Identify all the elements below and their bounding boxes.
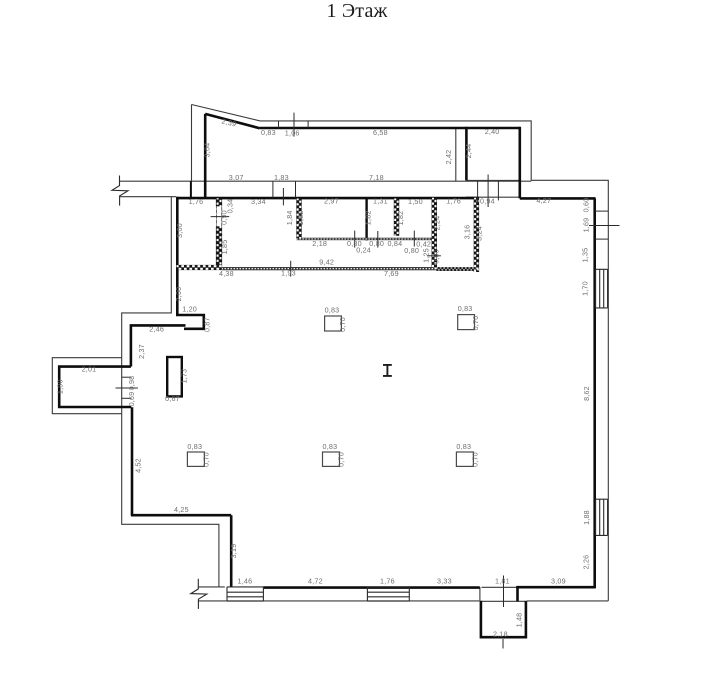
svg-text:0,94: 0,94: [480, 197, 495, 206]
svg-text:6,58: 6,58: [373, 128, 388, 137]
svg-text:4,52: 4,52: [134, 458, 143, 473]
svg-text:4,27: 4,27: [536, 196, 551, 205]
svg-text:1,90: 1,90: [55, 379, 64, 394]
svg-text:0,70: 0,70: [471, 452, 480, 467]
svg-text:1 Этаж: 1 Этаж: [326, 0, 387, 22]
svg-text:0,80: 0,80: [369, 239, 384, 248]
svg-text:7,69: 7,69: [384, 269, 399, 278]
svg-text:1,82: 1,82: [396, 211, 405, 226]
svg-text:1,85: 1,85: [220, 240, 229, 255]
svg-text:1,76: 1,76: [380, 577, 395, 586]
svg-text:2,18: 2,18: [312, 239, 327, 248]
svg-text:0,70: 0,70: [337, 452, 346, 467]
svg-text:1,20: 1,20: [182, 304, 197, 313]
svg-text:0,98: 0,98: [127, 376, 136, 391]
svg-text:0,60: 0,60: [582, 198, 591, 213]
svg-text:1,83: 1,83: [274, 173, 289, 182]
svg-text:0,24: 0,24: [356, 246, 371, 255]
svg-text:8,62: 8,62: [582, 386, 591, 401]
svg-text:2,40: 2,40: [485, 127, 500, 136]
svg-text:0,83: 0,83: [261, 128, 276, 137]
svg-text:1,46: 1,46: [238, 577, 253, 586]
svg-text:0,83: 0,83: [456, 442, 471, 451]
svg-text:4,72: 4,72: [308, 577, 323, 586]
svg-text:1,25: 1,25: [422, 248, 431, 263]
svg-text:0,70: 0,70: [471, 316, 480, 331]
svg-text:0,67: 0,67: [165, 394, 180, 403]
svg-text:2,42: 2,42: [444, 150, 453, 165]
svg-text:1,81: 1,81: [495, 577, 510, 586]
svg-text:1,76: 1,76: [446, 196, 461, 205]
svg-text:1,06: 1,06: [285, 129, 300, 138]
svg-text:2,44: 2,44: [464, 144, 473, 159]
svg-text:0,83: 0,83: [187, 442, 202, 451]
svg-text:0,83: 0,83: [325, 305, 340, 314]
svg-text:1,70: 1,70: [581, 281, 590, 296]
svg-text:3,19: 3,19: [229, 544, 238, 559]
svg-text:0,80: 0,80: [432, 249, 441, 264]
svg-text:2,18: 2,18: [493, 630, 508, 639]
svg-text:2,26: 2,26: [582, 555, 591, 570]
svg-text:0,69: 0,69: [127, 392, 136, 407]
svg-text:3,33: 3,33: [437, 577, 452, 586]
svg-text:1,76: 1,76: [189, 197, 204, 206]
svg-text:0,90: 0,90: [219, 210, 228, 225]
svg-text:1,84: 1,84: [285, 210, 294, 225]
svg-text:1,31: 1,31: [373, 197, 388, 206]
svg-text:0,83: 0,83: [458, 304, 473, 313]
svg-text:3,34: 3,34: [251, 197, 266, 206]
svg-text:3,24: 3,24: [474, 226, 483, 241]
svg-text:2,46: 2,46: [149, 325, 164, 334]
svg-text:2,37: 2,37: [137, 344, 146, 359]
svg-text:0,70: 0,70: [202, 452, 211, 467]
svg-text:1,48: 1,48: [515, 613, 524, 628]
svg-text:2,24: 2,24: [433, 216, 442, 231]
svg-text:4,25: 4,25: [174, 505, 189, 514]
svg-text:1,35: 1,35: [581, 248, 590, 263]
svg-text:0,83: 0,83: [323, 442, 338, 451]
svg-text:1,88: 1,88: [582, 510, 591, 525]
svg-text:2,97: 2,97: [324, 197, 339, 206]
svg-text:0,80: 0,80: [404, 246, 419, 255]
svg-text:3,04: 3,04: [203, 143, 212, 158]
svg-text:9,42: 9,42: [319, 257, 334, 266]
svg-text:1,50: 1,50: [408, 197, 423, 206]
svg-text:2,00: 2,00: [174, 287, 183, 302]
svg-text:3,00: 3,00: [175, 223, 184, 238]
svg-text:7,18: 7,18: [369, 173, 384, 182]
svg-text:4,38: 4,38: [219, 269, 234, 278]
svg-text:3,16: 3,16: [463, 225, 472, 240]
svg-text:0,84: 0,84: [388, 239, 403, 248]
svg-text:0,87: 0,87: [203, 317, 212, 332]
svg-text:1,69: 1,69: [582, 218, 591, 233]
svg-text:3,07: 3,07: [229, 173, 244, 182]
svg-text:1,82: 1,82: [296, 210, 305, 225]
svg-text:0,70: 0,70: [338, 317, 347, 332]
svg-text:1,73: 1,73: [179, 369, 188, 384]
svg-text:3,09: 3,09: [551, 577, 566, 586]
svg-text:2,01: 2,01: [82, 365, 97, 374]
svg-text:1,82: 1,82: [364, 210, 373, 225]
svg-text:1,93: 1,93: [281, 269, 296, 278]
